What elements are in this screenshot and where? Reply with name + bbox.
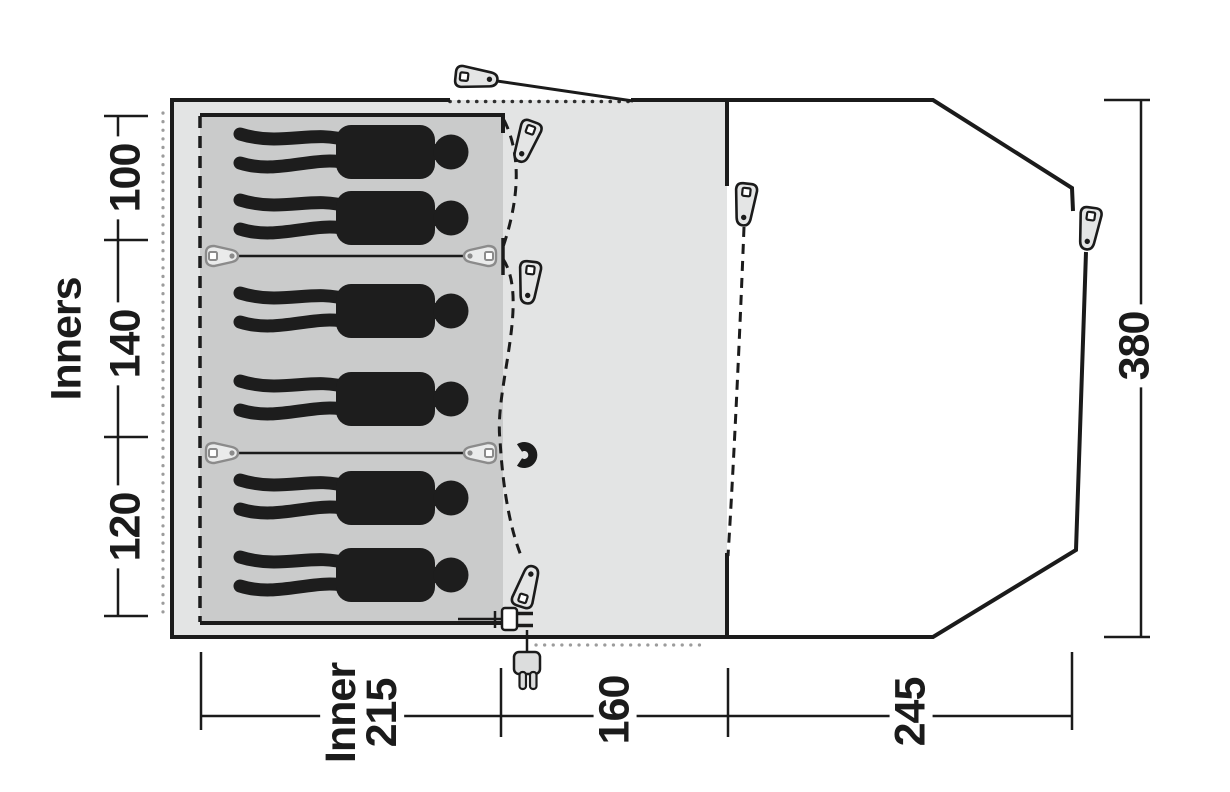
tent-peg-icon <box>1076 206 1103 251</box>
power-plug-external-icon <box>514 652 540 689</box>
tent-floorplan: Inners 100 140 120 Inner 215 160 245 380 <box>0 0 1230 792</box>
dim-label-120: 120 <box>105 486 148 569</box>
dim-label-245: 245 <box>890 671 933 754</box>
dim-label-inner-215: Inner 215 <box>320 656 404 770</box>
inners-title: Inners <box>46 270 89 407</box>
tent-peg-icon <box>455 65 499 90</box>
dim-label-160: 160 <box>594 669 637 752</box>
dim-label-100: 100 <box>105 137 148 220</box>
dim-label-380: 380 <box>1114 305 1157 388</box>
guy-line <box>490 80 633 101</box>
porch-area <box>727 100 1076 637</box>
dim-label-215: 215 <box>358 679 406 748</box>
dim-label-140: 140 <box>105 303 148 386</box>
